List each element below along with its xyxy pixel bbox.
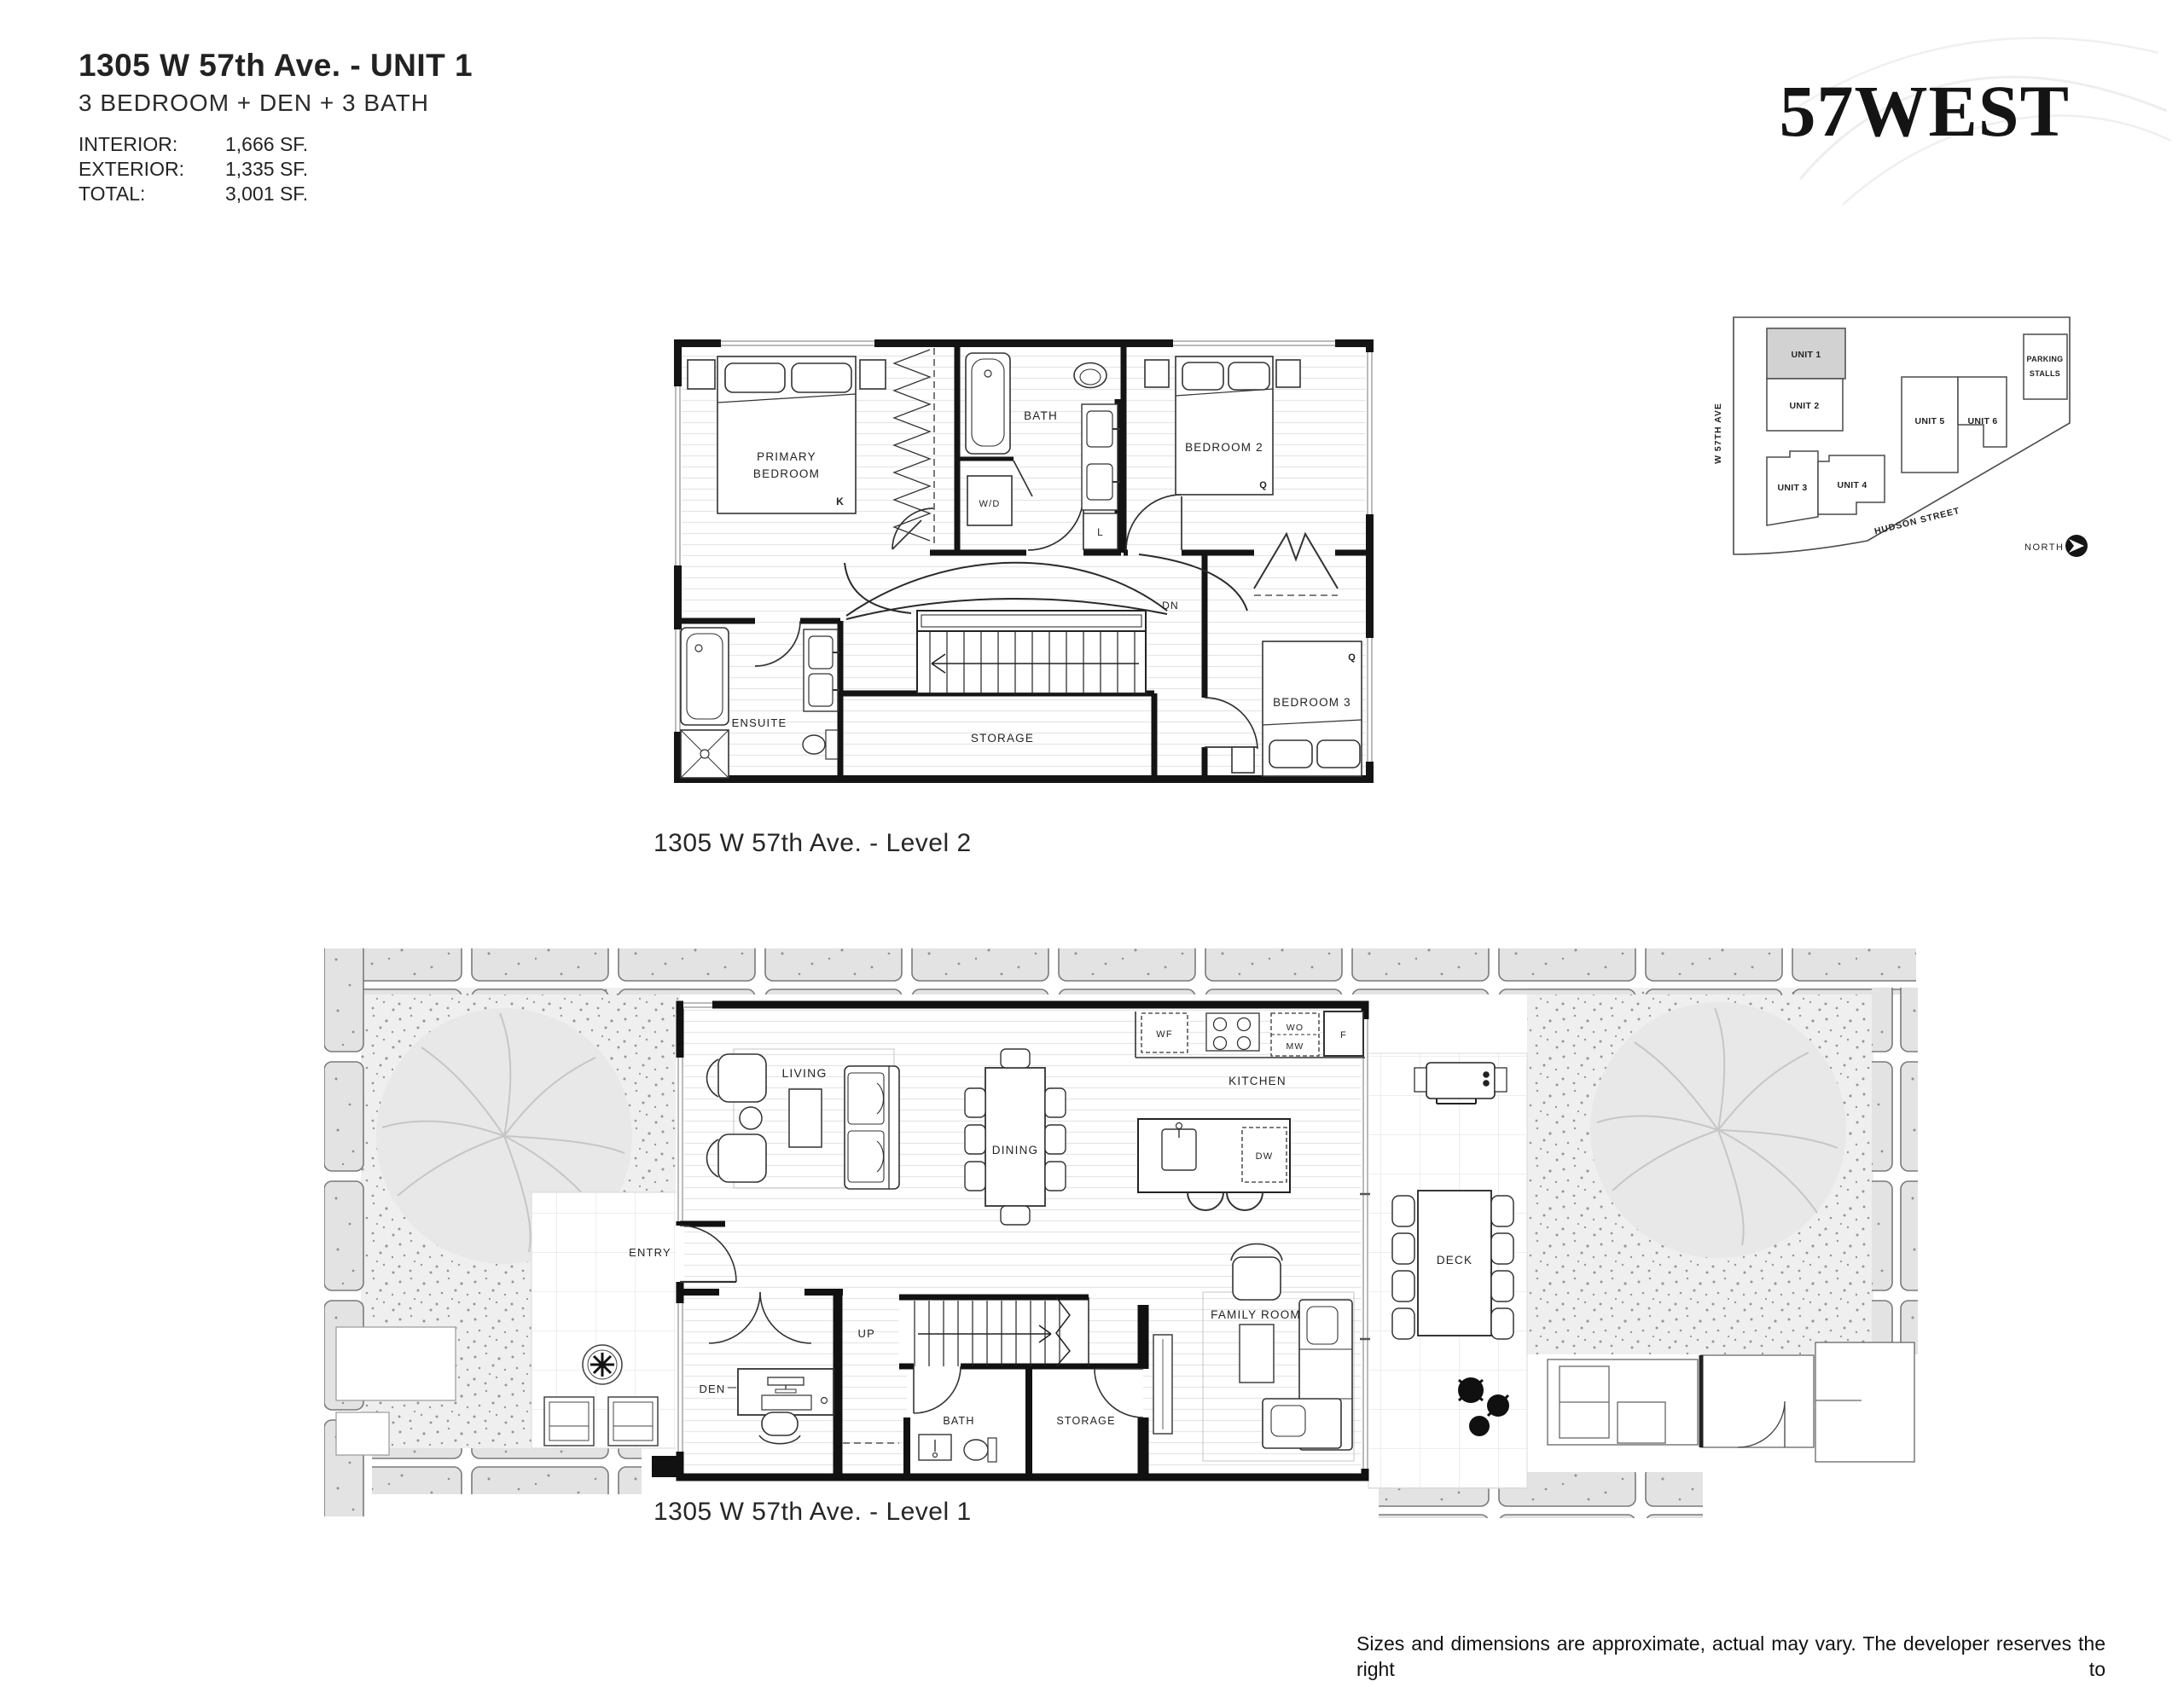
- pillow: [1182, 362, 1223, 390]
- label-up: UP: [858, 1327, 875, 1340]
- unit3-label: UNIT 3: [1777, 483, 1807, 493]
- site-plan: UNIT 1 UNIT 2 UNIT 3 UNIT 4 UNIT 5 UNIT …: [1710, 305, 2146, 577]
- planter-plant-icon: [590, 1353, 614, 1377]
- label-entry: ENTRY: [629, 1246, 671, 1259]
- monitor-icon: [768, 1377, 804, 1385]
- bed-size-king: K: [836, 496, 845, 507]
- tree-back: [1590, 1002, 1846, 1258]
- level1-floor-plan: ENTRY LIVING DINING DEN UP STORAGE BATH …: [321, 938, 1925, 1535]
- stat-label: INTERIOR:: [78, 132, 225, 157]
- stat-value: 1,666 SF.: [225, 132, 308, 157]
- level2-stairs: [917, 611, 1146, 693]
- armchair: [1233, 1257, 1281, 1300]
- room-label-storage: STORAGE: [971, 732, 1034, 745]
- level1-caption: 1305 W 57th Ave. - Level 1: [653, 1498, 972, 1527]
- room-label-bedroom3: BEDROOM 3: [1273, 696, 1351, 709]
- coffee-table: [789, 1089, 822, 1147]
- stat-interior: INTERIOR: 1,666 SF.: [78, 132, 473, 157]
- room-label-kitchen: KITCHEN: [1228, 1075, 1287, 1087]
- pillow: [1269, 740, 1312, 768]
- label-fridge: F: [1340, 1030, 1347, 1041]
- deck-area: [1368, 1053, 1527, 1488]
- stat-value: 3,001 SF.: [225, 182, 308, 206]
- porch-wall: [652, 1456, 682, 1477]
- nightstand: [1232, 747, 1254, 773]
- label-deck: DECK: [1437, 1254, 1472, 1267]
- nightstand: [688, 360, 715, 389]
- desk-chair: [762, 1412, 798, 1435]
- parking-shape: [2024, 334, 2067, 399]
- unit2-label: UNIT 2: [1789, 401, 1819, 411]
- toilet-icon: [826, 730, 838, 759]
- entry-walkway: [531, 1192, 680, 1448]
- street-label-w57th: W 57TH AVE: [1713, 403, 1723, 464]
- pillow: [1307, 1307, 1338, 1344]
- bed-size-queen: Q: [1259, 480, 1268, 490]
- north-label: NORTH: [2024, 542, 2064, 553]
- dining-table: [985, 1068, 1045, 1206]
- room-label-ensuite: ENSUITE: [732, 716, 787, 729]
- room-label-bath: BATH: [943, 1415, 974, 1427]
- area-stats: INTERIOR: 1,666 SF. EXTERIOR: 1,335 SF. …: [78, 132, 473, 206]
- side-table: [740, 1107, 762, 1129]
- floorplan-sheet: 1305 W 57th Ave. - UNIT 1 3 BEDROOM + DE…: [0, 0, 2184, 1687]
- north-arrow-icon: [2065, 535, 2088, 557]
- label-dn: DN: [1162, 600, 1179, 612]
- level2-floor-plan: PRIMARY BEDROOM BATH W/D L BEDROOM 2 DN …: [674, 339, 1374, 783]
- label-wall-oven: WO: [1287, 1023, 1304, 1033]
- label-dishwasher: DW: [1256, 1151, 1274, 1162]
- unit6-label: UNIT 6: [1967, 416, 1997, 426]
- disclaimer-line2: make changes and modifications to the in…: [1356, 1683, 2106, 1687]
- brand-logo: 57WEST: [1779, 68, 2070, 154]
- armchair: [718, 1054, 766, 1102]
- room-label-primary-line2: BEDROOM: [753, 467, 820, 480]
- unit4-label: UNIT 4: [1837, 480, 1867, 490]
- toilet-icon: [988, 1438, 996, 1462]
- unit5-label: UNIT 5: [1914, 416, 1944, 426]
- bbq-icon: [1414, 1063, 1507, 1104]
- armchair: [718, 1134, 766, 1182]
- parking-label-line2: STALLS: [2030, 369, 2060, 378]
- room-label-dining: DINING: [992, 1144, 1038, 1157]
- room-label-storage: STORAGE: [1056, 1415, 1115, 1427]
- level2-caption: 1305 W 57th Ave. - Level 2: [653, 829, 972, 858]
- disclaimer: Sizes and dimensions are approximate, ac…: [1356, 1631, 2106, 1687]
- parking-label-line1: PARKING: [2027, 355, 2064, 363]
- unit1-label: UNIT 1: [1791, 350, 1821, 360]
- label-wine-fridge: WF: [1156, 1029, 1173, 1040]
- stat-exterior: EXTERIOR: 1,335 SF.: [78, 157, 473, 182]
- nightstand: [1276, 360, 1300, 387]
- pillow: [725, 363, 785, 392]
- bed-size-queen: Q: [1348, 652, 1356, 663]
- pillow: [1228, 362, 1269, 390]
- side-table: [1240, 1325, 1274, 1383]
- room-label-family: FAMILY ROOM: [1211, 1308, 1301, 1321]
- page-subtitle: 3 BEDROOM + DEN + 3 BATH: [78, 90, 473, 117]
- pillow: [1271, 1406, 1305, 1436]
- stat-label: TOTAL:: [78, 182, 225, 206]
- rear-structures: [1548, 1342, 1914, 1462]
- label-washer-dryer: W/D: [979, 499, 1001, 509]
- nightstand: [1145, 360, 1169, 387]
- pillow: [792, 363, 851, 392]
- stair-floor: [899, 1297, 1089, 1366]
- page-title: 1305 W 57th Ave. - UNIT 1: [78, 48, 473, 84]
- label-linen: L: [1097, 526, 1104, 538]
- pillow: [1317, 740, 1360, 768]
- room-label-den: DEN: [699, 1383, 725, 1395]
- header: 1305 W 57th Ave. - UNIT 1 3 BEDROOM + DE…: [78, 48, 473, 206]
- room-label-living: LIVING: [781, 1066, 827, 1080]
- room-label-primary-line1: PRIMARY: [757, 450, 816, 463]
- disclaimer-line1: Sizes and dimensions are approximate, ac…: [1356, 1631, 2106, 1683]
- nightstand: [860, 360, 886, 389]
- room-label-bath: BATH: [1024, 409, 1058, 422]
- stat-value: 1,335 SF.: [225, 157, 308, 182]
- label-microwave: MW: [1286, 1041, 1304, 1052]
- stat-total: TOTAL: 3,001 SF.: [78, 182, 473, 206]
- stat-label: EXTERIOR:: [78, 157, 225, 182]
- cooktop-icon: [1206, 1013, 1259, 1051]
- room-label-bedroom2: BEDROOM 2: [1185, 441, 1263, 454]
